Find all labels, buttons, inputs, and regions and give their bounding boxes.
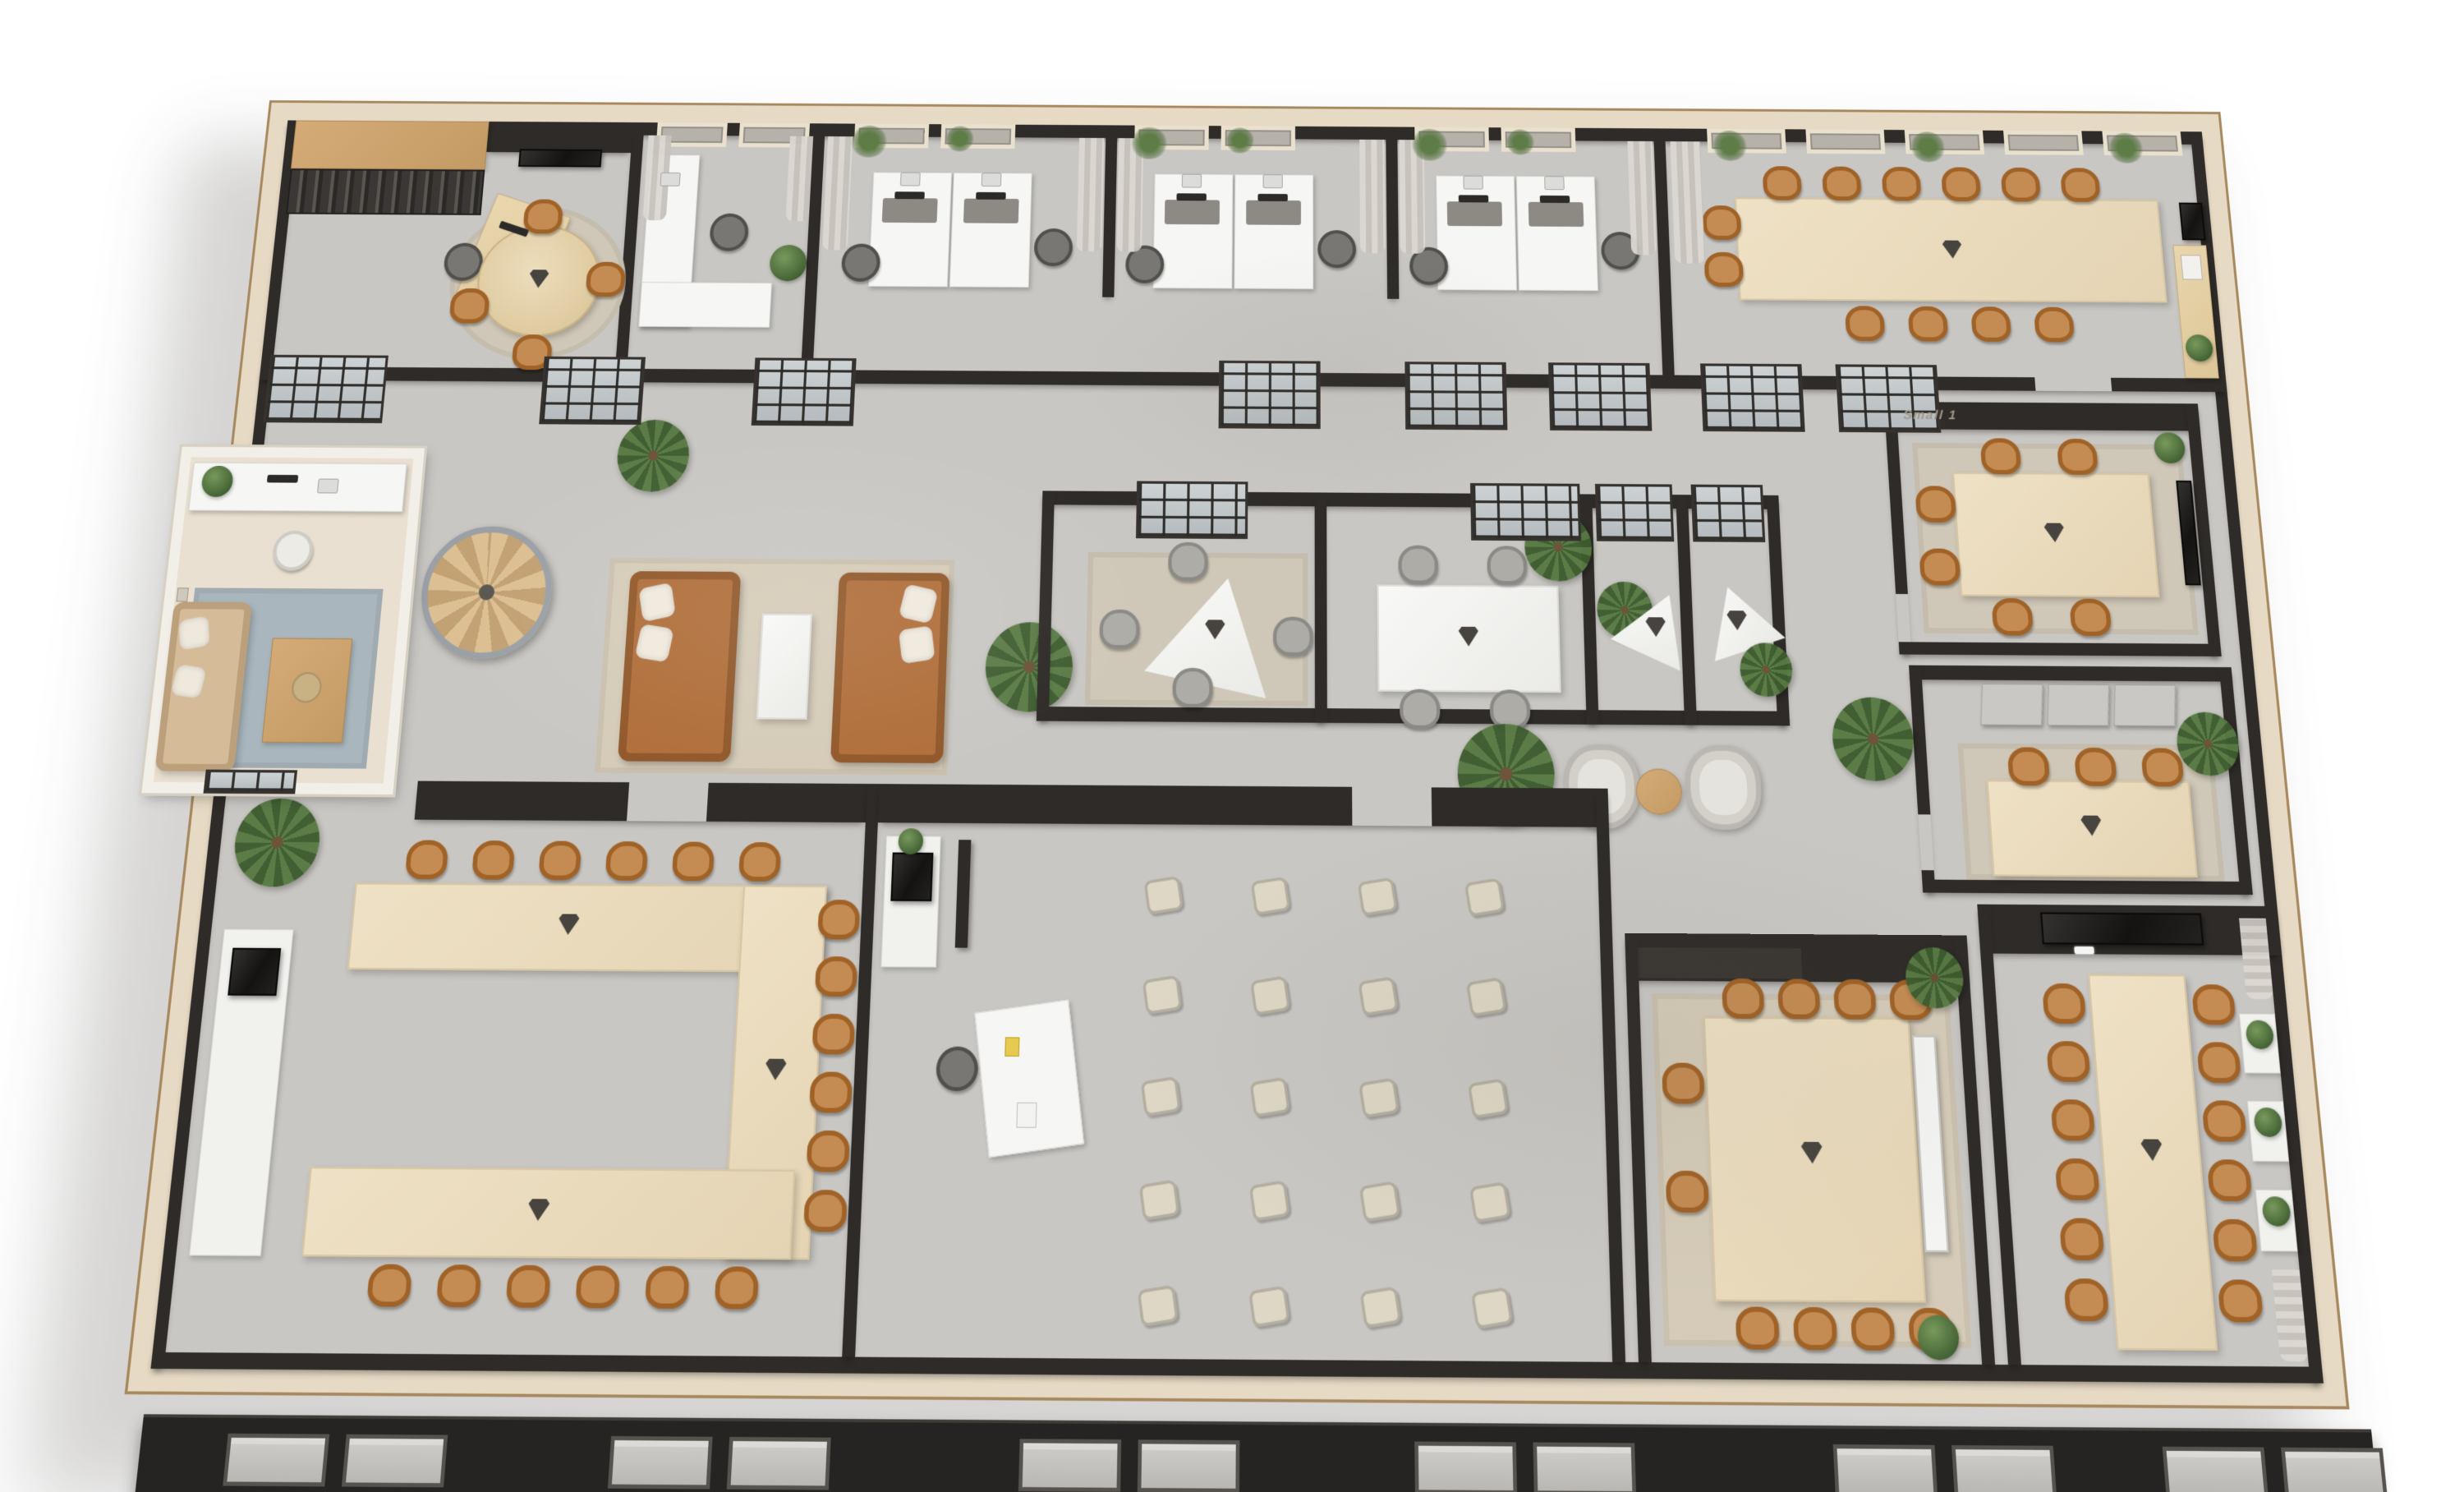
leather-chair — [1793, 1307, 1838, 1351]
pillow — [178, 615, 209, 651]
pillow — [638, 583, 675, 622]
monitor-icon — [1176, 193, 1206, 200]
meeting-chair — [1400, 689, 1441, 730]
monitor-icon — [267, 475, 298, 483]
spiral-staircase — [416, 526, 556, 659]
task-chair — [1033, 228, 1073, 266]
door-opening — [627, 782, 709, 822]
facade-window — [1414, 1442, 1517, 1492]
acoustic-panel — [1980, 684, 2043, 725]
leather-chair — [405, 840, 449, 879]
palm-plant — [615, 420, 692, 492]
leather-chair — [2212, 1219, 2258, 1262]
wall-clock-display — [2074, 946, 2094, 954]
wall — [1625, 933, 1652, 1362]
training-chair — [1358, 877, 1398, 917]
training-chair — [1358, 976, 1399, 1016]
facade-window — [608, 1436, 713, 1490]
leather-chair — [1662, 1062, 1705, 1103]
south-facade — [134, 1414, 2380, 1492]
glass-partition — [1700, 363, 1805, 431]
leather-chair — [738, 842, 781, 882]
notepad — [1004, 1037, 1019, 1057]
facade-window — [1951, 1445, 2057, 1492]
desk-mat — [963, 199, 1019, 223]
binder-shelf — [286, 168, 485, 215]
training-chair — [1359, 1286, 1401, 1329]
glass-partition — [1548, 362, 1652, 431]
leather-chair — [2042, 983, 2086, 1024]
leather-chair — [1666, 1171, 1709, 1213]
floor-plan-scene: Small 1 — [0, 0, 2464, 1492]
meeting-chair — [1168, 542, 1208, 581]
workstation-desk — [1153, 173, 1234, 288]
hanging-plant — [849, 125, 889, 157]
glass-door — [1136, 481, 1248, 539]
flipchart-board — [955, 840, 972, 947]
leather-chair — [2050, 1099, 2095, 1141]
leather-chair — [1833, 979, 1877, 1020]
annex-glass-door — [204, 770, 298, 794]
desk-mat — [1246, 200, 1301, 225]
laptop-icon — [1263, 174, 1283, 188]
divider-wall — [1386, 140, 1399, 299]
leather-chair — [2000, 168, 2041, 202]
training-chair — [1359, 1181, 1401, 1223]
leather-chair — [803, 1190, 848, 1232]
monitor-icon — [976, 192, 1006, 200]
plant — [769, 245, 807, 281]
leather-chair — [538, 840, 582, 880]
curtain — [1627, 141, 1656, 256]
round-side-table — [1635, 768, 1683, 814]
curtain — [1077, 138, 1104, 252]
wall — [842, 784, 880, 1357]
door-opening — [1352, 787, 1432, 827]
training-chair — [1466, 977, 1507, 1017]
leather-chair — [1881, 167, 1921, 201]
coffee-table — [756, 614, 812, 720]
leather-chair — [672, 841, 715, 881]
leather-chair — [1735, 1306, 1780, 1350]
leather-chair — [2201, 1100, 2247, 1142]
meeting-chair — [1099, 610, 1139, 649]
leather-chair — [2191, 984, 2236, 1025]
training-chair — [1471, 1287, 1514, 1329]
acoustic-panel — [2114, 684, 2176, 726]
task-chair — [709, 214, 749, 251]
leather-chair — [809, 1071, 853, 1112]
leather-chair — [586, 262, 627, 297]
tv-screen — [518, 149, 602, 167]
monitor-icon — [1257, 194, 1287, 201]
glass-partition — [539, 357, 646, 425]
pillow — [899, 584, 939, 624]
presenter-desk — [974, 999, 1084, 1158]
wall — [1909, 665, 2232, 682]
desk-chair — [271, 531, 315, 571]
glass-partition — [1219, 361, 1321, 429]
wall — [1595, 789, 1625, 1362]
leather-chair — [471, 840, 516, 880]
building-projection: Small 1 — [117, 103, 2356, 1492]
room-signage-small-1: Small 1 — [1903, 408, 1957, 422]
glass-front — [1595, 484, 1674, 541]
leather-chair — [815, 956, 858, 997]
coffee-machine — [228, 948, 281, 996]
leather-chair — [1915, 486, 1956, 523]
palm-plant — [230, 799, 324, 887]
leather-chair — [1907, 306, 1948, 342]
workstation-desk — [1516, 176, 1598, 291]
leather-chair — [1702, 205, 1741, 240]
training-chair — [1250, 976, 1290, 1016]
monitor-icon — [1540, 196, 1570, 203]
palm-plant — [984, 622, 1073, 712]
window — [1805, 129, 1885, 154]
leather-chair — [1919, 549, 1961, 586]
leather-chair — [522, 199, 563, 233]
workstation-desk — [1234, 174, 1313, 289]
workstation-desk — [868, 172, 952, 287]
palm-plant — [1831, 697, 1916, 781]
pillow — [635, 624, 674, 662]
door-opening — [1896, 594, 1910, 642]
leather-chair — [2059, 1218, 2105, 1260]
window — [2003, 131, 2084, 155]
leather-chair — [1722, 979, 1765, 1019]
leather-chair — [2196, 1042, 2241, 1083]
desk-mat — [1165, 200, 1220, 224]
workstation-desk — [1436, 176, 1517, 291]
leather-chair — [807, 1131, 851, 1172]
studio-annex — [141, 447, 425, 794]
door-opening — [2034, 377, 2112, 391]
magazine-stack — [2181, 255, 2203, 279]
curtain — [785, 136, 813, 222]
training-chair — [1142, 975, 1183, 1015]
leather-chair — [1704, 252, 1745, 287]
leather-chair — [1762, 166, 1802, 200]
glass-front — [1691, 485, 1766, 542]
leather-chair — [817, 900, 860, 940]
leather-chair — [575, 1265, 620, 1308]
wall — [1899, 642, 2222, 656]
leather-chair — [505, 1265, 551, 1308]
l-desk — [638, 282, 772, 328]
leather-chair — [645, 1266, 690, 1309]
desk-mat — [1529, 202, 1584, 227]
desk-mat — [1447, 201, 1502, 226]
sofa — [830, 573, 949, 763]
hanging-plant — [1410, 129, 1449, 161]
leather-chair — [1941, 167, 1981, 201]
training-chair — [1141, 1076, 1181, 1117]
paper-sheet — [1016, 1103, 1037, 1128]
training-chair — [1143, 876, 1184, 915]
task-chair — [935, 1047, 979, 1092]
monitor-icon — [1459, 195, 1489, 202]
leather-chair — [2217, 1279, 2264, 1322]
desk-mat — [882, 198, 938, 223]
glass-partition — [1836, 364, 1942, 432]
wall-display — [2179, 203, 2206, 241]
wall-tv — [2040, 912, 2204, 945]
leather-chair — [1822, 167, 1862, 201]
facade-window — [1018, 1439, 1121, 1492]
curtain — [822, 136, 853, 251]
training-chair — [1248, 1286, 1290, 1329]
wood-cabinet — [291, 121, 490, 170]
training-chair — [1251, 877, 1291, 916]
leather-chair — [811, 1014, 855, 1055]
meeting-chair — [1487, 546, 1527, 584]
hanging-plant — [1506, 129, 1536, 154]
sofa — [618, 571, 741, 762]
door-opening — [1918, 814, 1933, 870]
leather-chair — [2063, 1278, 2109, 1321]
training-chair — [1139, 1179, 1180, 1220]
facade-window — [727, 1437, 831, 1490]
facade-window — [1533, 1443, 1636, 1492]
training-chair — [1468, 1078, 1510, 1119]
leather-chair — [2207, 1159, 2253, 1201]
leather-chair — [2060, 168, 2101, 202]
building-shell: Small 1 — [127, 103, 2346, 1407]
leather-chair — [2055, 1158, 2100, 1200]
lounge-armchair — [1684, 745, 1763, 830]
training-chair — [1464, 877, 1506, 917]
leather-chair — [605, 841, 648, 881]
curtain — [1671, 141, 1706, 264]
training-chair — [1249, 1180, 1290, 1221]
wall — [878, 784, 1609, 827]
laptop-icon — [1463, 176, 1483, 190]
hanging-plant — [1130, 127, 1169, 159]
facade-window — [223, 1434, 329, 1487]
laptop-icon — [660, 173, 680, 186]
training-chair — [1249, 1077, 1290, 1117]
facade-window — [342, 1434, 448, 1488]
wall — [150, 1352, 2323, 1384]
laptop-icon — [1182, 174, 1202, 188]
coffee-machine — [890, 853, 933, 902]
laptop-icon — [317, 479, 339, 494]
leather-chair — [2034, 307, 2076, 343]
glass-partition — [263, 355, 388, 423]
facade-window — [2281, 1448, 2388, 1492]
facade-window — [2163, 1447, 2269, 1492]
workstation-desk — [949, 173, 1032, 288]
training-chair — [1138, 1285, 1179, 1328]
laptop-icon — [981, 173, 1002, 186]
wall — [1315, 492, 1327, 722]
laptop-icon — [1544, 176, 1565, 190]
leather-chair — [448, 288, 490, 324]
acoustic-panel — [2047, 684, 2109, 726]
pillow — [170, 664, 206, 698]
dark-sideboard — [1638, 947, 1802, 979]
meeting-chair — [1172, 668, 1212, 708]
hanging-plant — [1225, 127, 1255, 153]
glass-partition — [1404, 361, 1507, 430]
leather-chair — [1970, 306, 2011, 342]
facade-window — [1833, 1444, 1938, 1492]
leather-chair — [1777, 979, 1821, 1019]
task-chair — [1317, 230, 1356, 268]
glass-partition — [752, 357, 857, 426]
wall — [1922, 880, 2253, 896]
picture-frame — [176, 587, 189, 601]
leather-chair — [1850, 1307, 1896, 1351]
hanging-plant — [1711, 131, 1749, 161]
long-table — [2088, 974, 2218, 1351]
meeting-chair — [1273, 617, 1313, 656]
pillow — [899, 625, 935, 664]
curtain — [1359, 140, 1385, 254]
glass-door — [1470, 483, 1581, 541]
u-table-bottom — [301, 1167, 795, 1259]
meeting-chair — [1398, 546, 1438, 584]
training-chair — [1469, 1181, 1511, 1223]
leather-chair — [2046, 1041, 2091, 1082]
leather-chair — [1845, 306, 1886, 341]
leather-chair — [715, 1266, 760, 1309]
laptop-icon — [900, 173, 921, 186]
divider-wall — [1102, 138, 1117, 297]
leather-chair — [366, 1264, 412, 1307]
facade-window — [1138, 1439, 1240, 1492]
monitor-icon — [894, 191, 925, 199]
training-chair — [1358, 1078, 1400, 1118]
leather-chair — [436, 1264, 482, 1307]
